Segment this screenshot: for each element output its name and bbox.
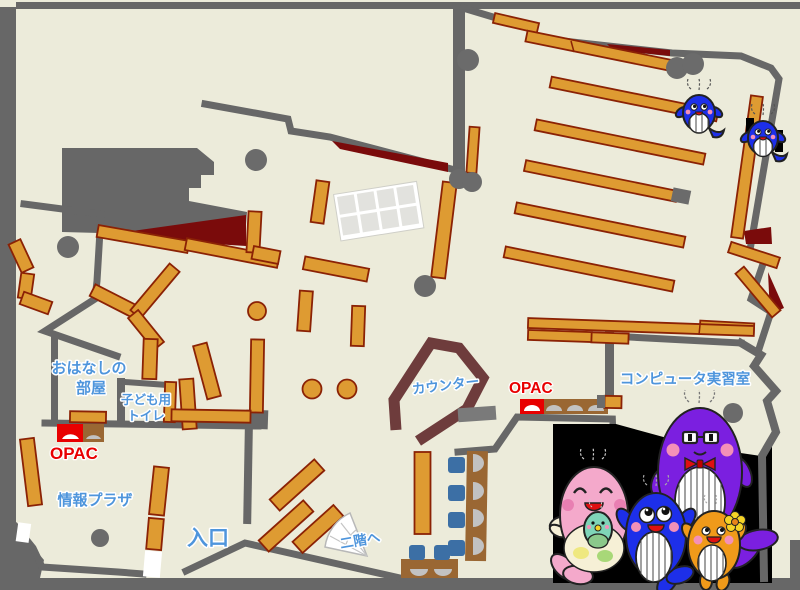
counter-back-desk	[458, 406, 497, 423]
opac-station-right	[520, 399, 608, 414]
label-kids-toilet-line1: 子ども用	[121, 393, 171, 407]
label-opac-left: OPAC	[50, 444, 98, 463]
label-storytelling-room-line1: おはなしの	[51, 360, 126, 377]
door-opening	[16, 522, 32, 543]
label-storytelling-room-line2: 部屋	[76, 379, 106, 397]
opac-station-left	[57, 424, 104, 442]
round-table	[338, 380, 357, 399]
label-computer-room: コンピュータ実習室	[620, 370, 751, 388]
floor-plan-canvas: おはなしの 部屋 子ども用 トイレ OPAC 情報プラザ 入口 二階へ カウンタ…	[0, 0, 800, 590]
label-kids-toilet-line2: トイレ	[127, 409, 165, 423]
round-table	[248, 302, 266, 320]
entrance-door-opening	[143, 550, 162, 577]
library-floor-map: おはなしの 部屋 子ども用 トイレ OPAC 情報プラザ 入口 二階へ カウンタ…	[0, 0, 800, 590]
label-entrance: 入口	[187, 527, 229, 550]
label-opac-right: OPAC	[509, 380, 553, 397]
round-table	[303, 380, 322, 399]
label-info-plaza: 情報プラザ	[57, 491, 132, 509]
